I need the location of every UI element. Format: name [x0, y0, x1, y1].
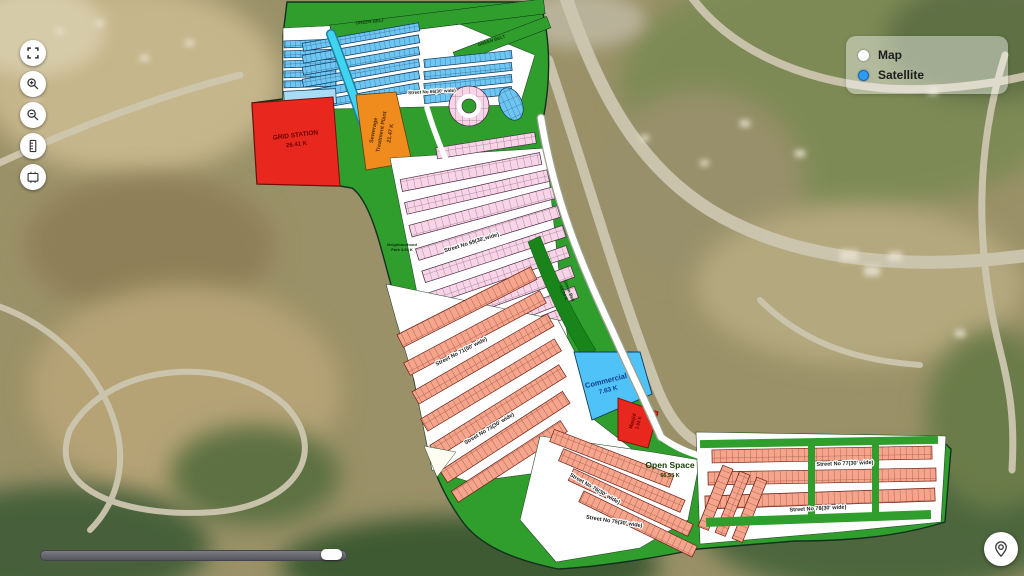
measure-length-button[interactable]: [20, 133, 46, 159]
satellite-radio-label: Satellite: [878, 68, 924, 82]
map-toolbar: [20, 40, 46, 190]
layer-option-satellite[interactable]: Satellite: [858, 65, 996, 85]
ruler-icon: [26, 139, 40, 153]
fullscreen-button[interactable]: [20, 40, 46, 66]
area-icon: [26, 170, 40, 184]
layer-option-map[interactable]: Map: [858, 45, 996, 65]
horizontal-scrollbar[interactable]: [40, 550, 347, 561]
zoom-in-button[interactable]: [20, 71, 46, 97]
open-space-label: Open Space: [645, 460, 694, 470]
map-radio-label: Map: [878, 48, 902, 62]
zoom-in-icon: [26, 77, 40, 91]
fullscreen-icon: [26, 46, 40, 60]
open-space-size: 66.53 K: [660, 473, 679, 479]
map-radio[interactable]: [858, 50, 869, 61]
scrollbar-thumb[interactable]: [321, 549, 342, 560]
location-pin-icon: [992, 540, 1010, 558]
zoom-out-button[interactable]: [20, 102, 46, 128]
layer-switcher: Map Satellite: [846, 36, 1008, 94]
map-canvas[interactable]: GRID STATION 26.41 K Sewerage Treatment …: [0, 0, 1024, 576]
locate-button[interactable]: [984, 532, 1018, 566]
park-label-2: Park 4.09 K: [391, 247, 413, 252]
zoom-out-icon: [26, 108, 40, 122]
satellite-radio[interactable]: [858, 70, 869, 81]
measure-area-button[interactable]: [20, 164, 46, 190]
